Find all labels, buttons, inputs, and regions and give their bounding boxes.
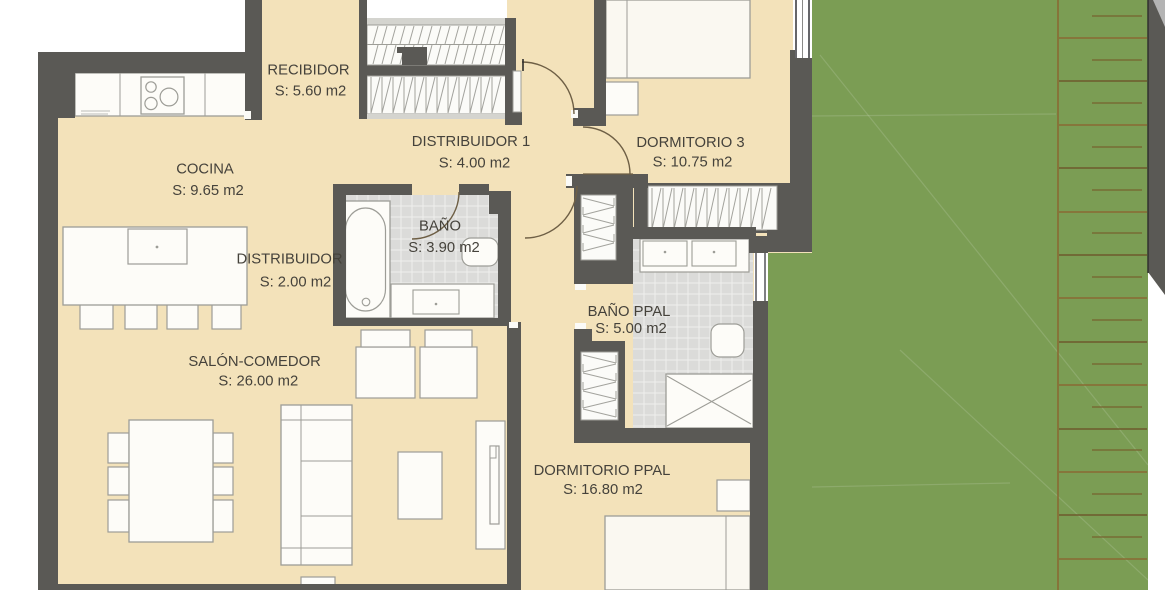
- svg-text:S: 9.65 m2: S: 9.65 m2: [172, 183, 244, 199]
- svg-text:DISTRIBUIDOR 1: DISTRIBUIDOR 1: [412, 134, 530, 150]
- svg-text:DISTRIBUIDOR: DISTRIBUIDOR: [236, 252, 342, 268]
- svg-text:BAÑO: BAÑO: [419, 218, 461, 235]
- svg-text:S: 26.00 m2: S: 26.00 m2: [218, 374, 298, 390]
- svg-text:S: 4.00 m2: S: 4.00 m2: [439, 156, 511, 172]
- svg-text:S: 16.80 m2: S: 16.80 m2: [563, 482, 643, 498]
- svg-text:S: 5.00 m2: S: 5.00 m2: [595, 321, 667, 337]
- svg-text:S: 3.90 m2: S: 3.90 m2: [408, 240, 480, 256]
- svg-text:RECIBIDOR: RECIBIDOR: [267, 62, 349, 78]
- svg-text:S: 2.00 m2: S: 2.00 m2: [260, 274, 332, 290]
- svg-text:S: 5.60 m2: S: 5.60 m2: [275, 84, 347, 100]
- svg-text:SALÓN-COMEDOR: SALÓN-COMEDOR: [188, 353, 320, 370]
- svg-text:DORMITORIO 3: DORMITORIO 3: [636, 135, 744, 151]
- svg-text:S: 10.75 m2: S: 10.75 m2: [653, 155, 733, 171]
- svg-text:BAÑO PPAL: BAÑO PPAL: [588, 303, 671, 320]
- svg-text:DORMITORIO PPAL: DORMITORIO PPAL: [534, 463, 671, 479]
- svg-text:COCINA: COCINA: [176, 162, 234, 178]
